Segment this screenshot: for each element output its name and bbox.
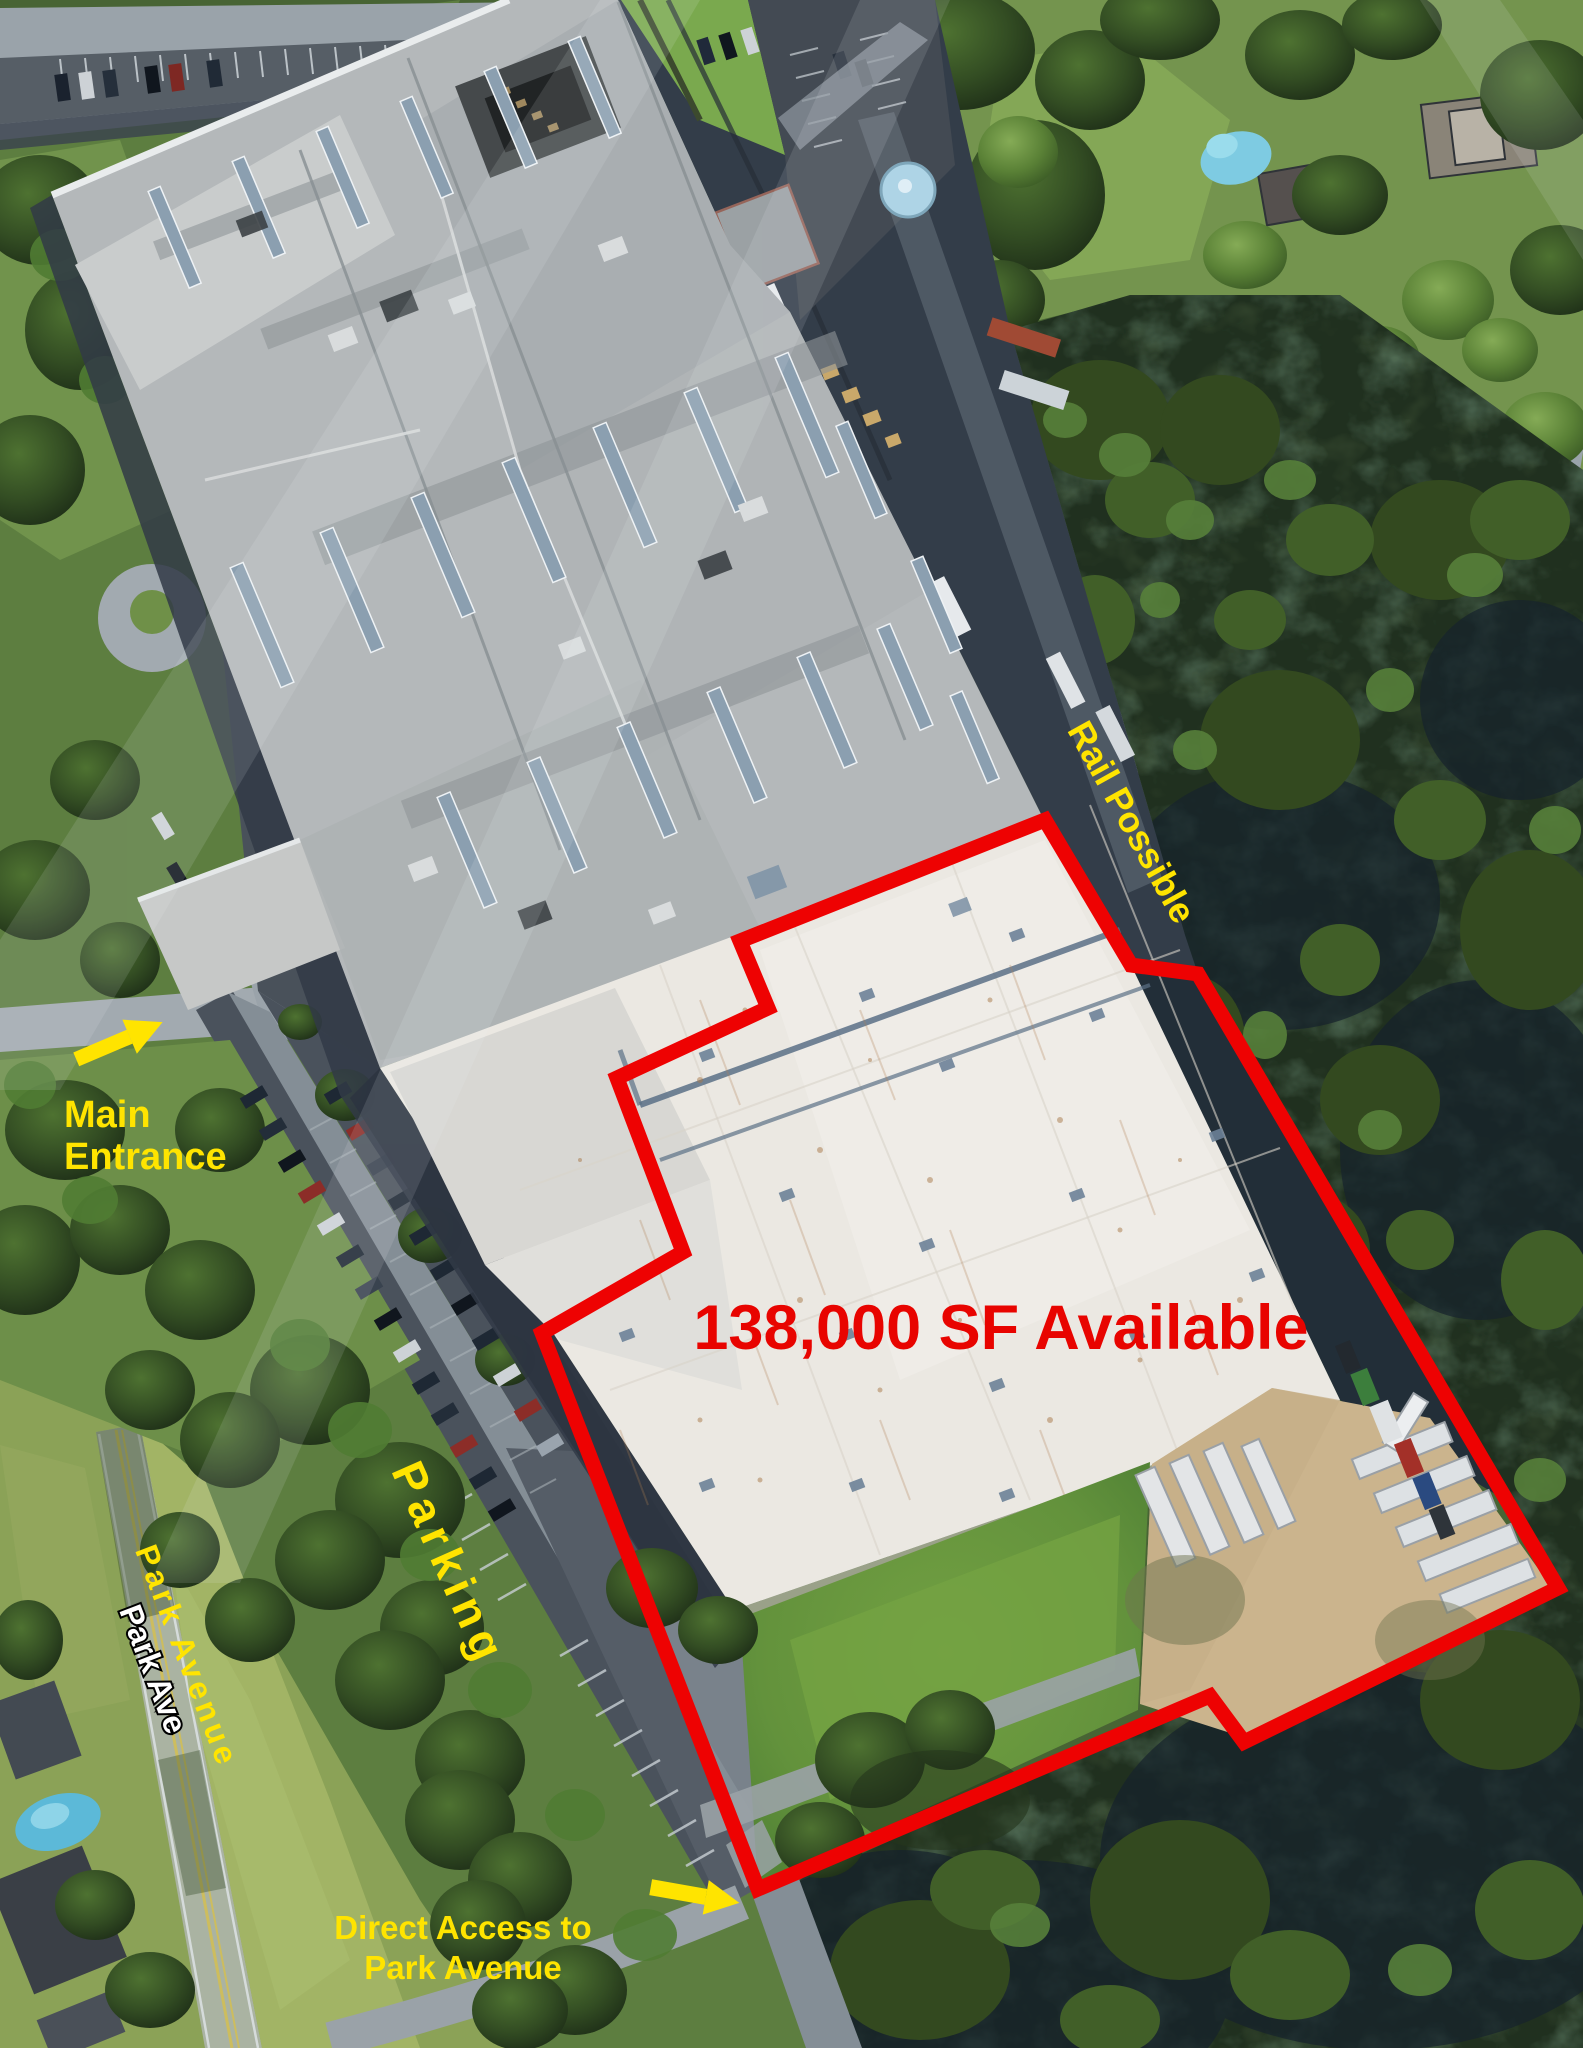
svg-text:Entrance: Entrance xyxy=(64,1136,227,1178)
svg-text:Main: Main xyxy=(64,1094,151,1136)
svg-text:Park Avenue: Park Avenue xyxy=(364,1949,561,1986)
svg-text:138,000 SF Available: 138,000 SF Available xyxy=(693,1293,1308,1363)
svg-text:Direct Access to: Direct Access to xyxy=(334,1909,591,1946)
